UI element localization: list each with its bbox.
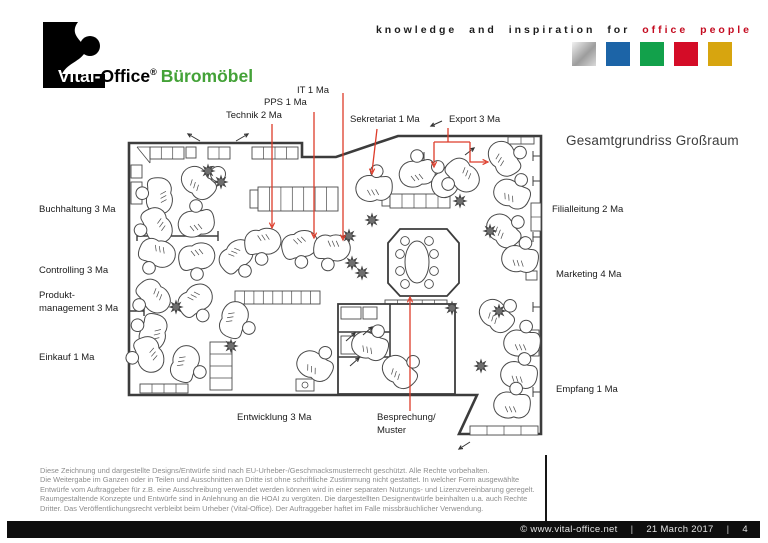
label-it: IT 1 Ma <box>297 85 329 98</box>
disclaimer-line: Die Weitergabe im Ganzen oder in Teilen … <box>40 475 535 484</box>
tagline: knowledge and inspiration for office peo… <box>376 24 752 36</box>
brand-color-squares <box>572 42 732 66</box>
label-buchhaltung: Buchhaltung 3 Ma <box>39 204 116 217</box>
disclaimer: Diese Zeichnung und dargestellte Designs… <box>40 466 535 513</box>
label-filialleitung: Filialleitung 2 Ma <box>552 204 623 217</box>
disclaimer-line: Entwürfe vom Auftraggeber für z.B. eine … <box>40 485 535 494</box>
label-produkt-line1: Produkt- <box>39 290 118 303</box>
disclaimer-line: Diese Zeichnung und dargestellte Designs… <box>40 466 535 475</box>
square-green <box>640 42 664 66</box>
footer-copyright: © www.vital-office.net <box>520 524 617 535</box>
brand-wordmark: Vital-Office®Büromöbel <box>58 66 253 86</box>
square-blue <box>606 42 630 66</box>
label-controlling: Controlling 3 Ma <box>39 265 108 278</box>
footer-separator: | <box>727 524 730 535</box>
square-red <box>674 42 698 66</box>
vital-office-logo: Vital-Office®Büromöbel <box>40 20 270 96</box>
label-sekretariat: Sekretariat 1 Ma <box>350 114 420 127</box>
floor-plan <box>125 85 549 462</box>
label-besprechung: Besprechung/ Muster <box>377 412 436 437</box>
footer-divider-line <box>545 455 547 521</box>
footer-date: 21 March 2017 <box>646 524 713 535</box>
page: Vital-Office®Büromöbel knowledge and ins… <box>0 0 768 543</box>
label-export: Export 3 Ma <box>449 114 500 127</box>
label-marketing: Marketing 4 Ma <box>556 269 621 282</box>
label-besprechung-line2: Muster <box>377 425 436 438</box>
footer-bar: © www.vital-office.net | 21 March 2017 |… <box>7 521 760 538</box>
tagline-red: office people <box>642 24 752 36</box>
disclaimer-line: Raumgestaltende Konzepte und Entwürfe si… <box>40 494 535 503</box>
label-produkt-line2: management 3 Ma <box>39 303 118 316</box>
label-besprechung-line1: Besprechung/ <box>377 412 436 425</box>
label-entwicklung: Entwicklung 3 Ma <box>237 412 311 425</box>
label-empfang: Empfang 1 Ma <box>556 384 618 397</box>
footer-page-number: 4 <box>742 524 748 535</box>
label-technik: Technik 2 Ma <box>226 110 282 123</box>
label-einkauf: Einkauf 1 Ma <box>39 352 94 365</box>
footer-separator: | <box>631 524 634 535</box>
label-produktmanagement: Produkt- management 3 Ma <box>39 290 118 315</box>
square-silver <box>572 42 596 66</box>
label-pps: PPS 1 Ma <box>264 97 307 110</box>
disclaimer-line: Dritter. Das Veröffentlichungsrecht verb… <box>40 504 535 513</box>
square-gold <box>708 42 732 66</box>
logo-dot <box>80 36 100 56</box>
plan-title: Gesamtgrundriss Großraum <box>566 133 739 148</box>
brand-product: Büromöbel <box>161 66 253 86</box>
tagline-black: knowledge and inspiration for <box>376 24 630 36</box>
